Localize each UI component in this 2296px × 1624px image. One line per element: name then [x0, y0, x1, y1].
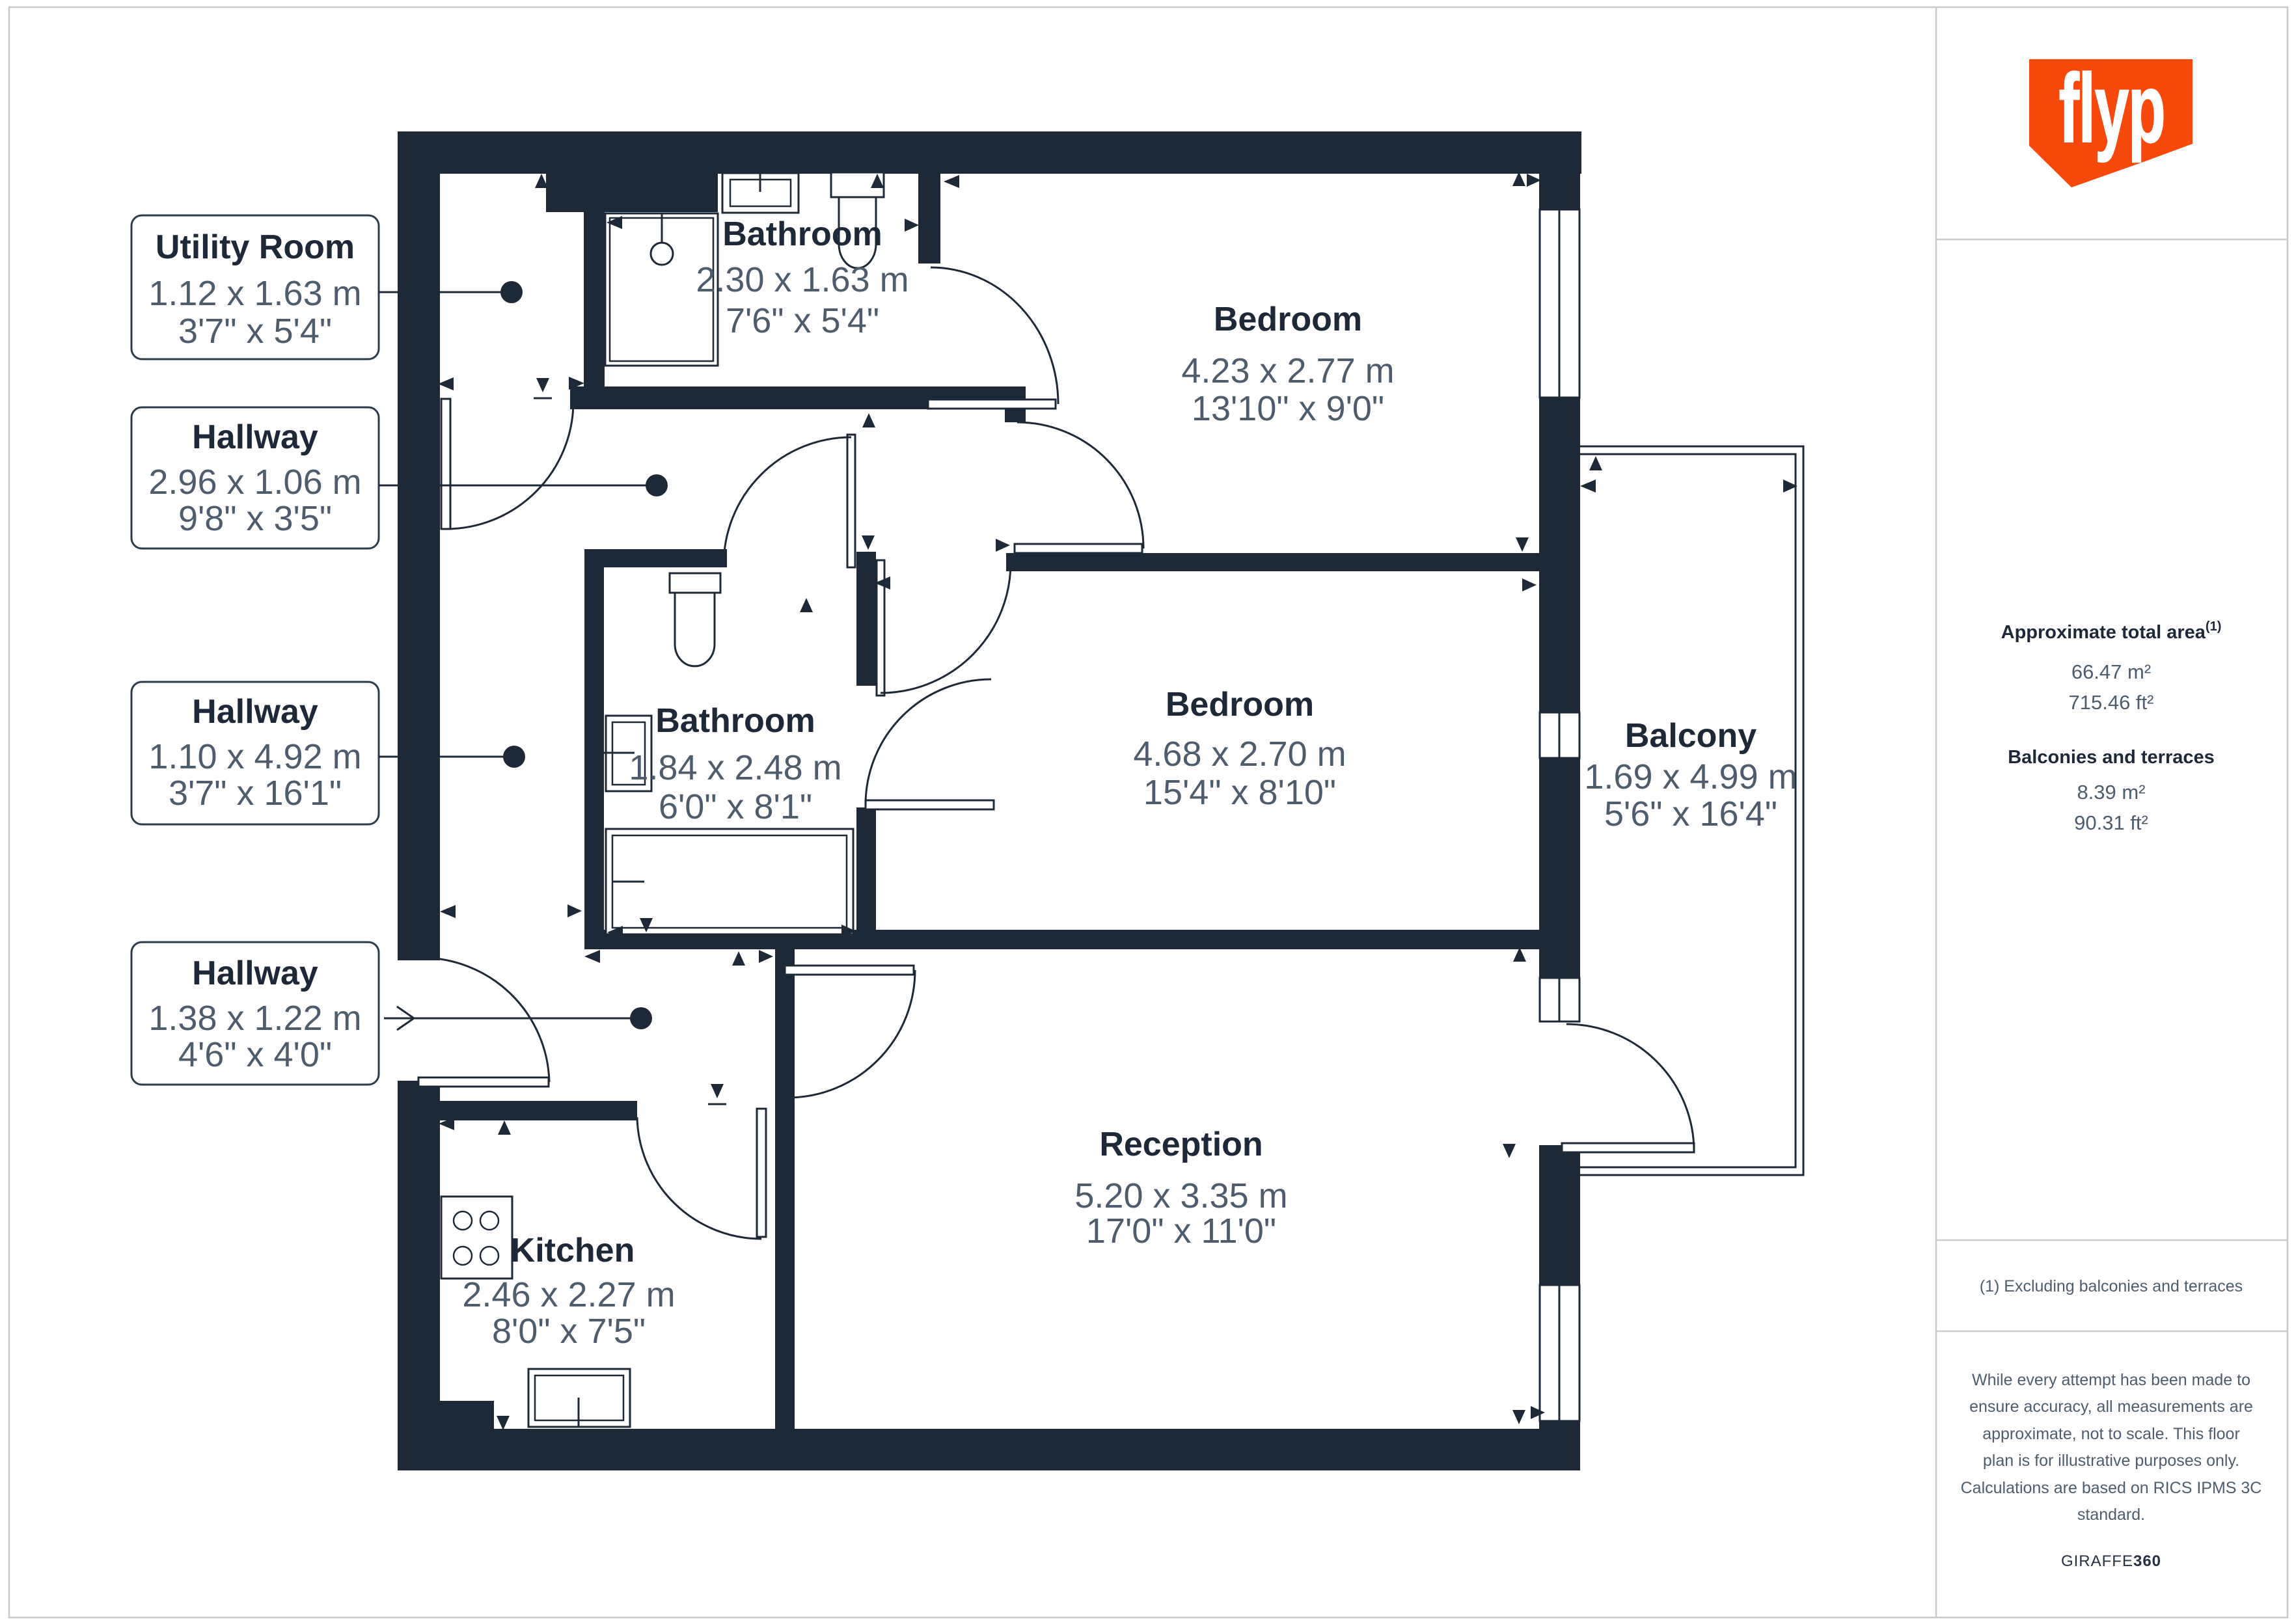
- svg-text:Kitchen: Kitchen: [511, 1232, 635, 1269]
- svg-text:4.68 x 2.70 m: 4.68 x 2.70 m: [1133, 735, 1346, 774]
- svg-text:1.69 x 4.99 m: 1.69 x 4.99 m: [1584, 757, 1797, 796]
- svg-text:2.46 x 2.27 m: 2.46 x 2.27 m: [462, 1275, 675, 1314]
- svg-text:Balcony: Balcony: [1625, 717, 1756, 755]
- svg-text:4.23 x 2.77 m: 4.23 x 2.77 m: [1181, 351, 1394, 390]
- svg-text:715.46 ft²: 715.46 ft²: [2069, 691, 2154, 714]
- svg-text:17'0" x 11'0": 17'0" x 11'0": [1086, 1211, 1276, 1251]
- svg-text:While every attempt has been m: While every attempt has been made to: [1972, 1371, 2250, 1389]
- svg-text:1.84 x 2.48 m: 1.84 x 2.48 m: [629, 748, 841, 787]
- svg-text:6'0" x 8'1": 6'0" x 8'1": [659, 787, 812, 826]
- svg-text:Hallway: Hallway: [192, 418, 318, 456]
- svg-text:3'7" x 5'4": 3'7" x 5'4": [178, 312, 332, 351]
- svg-text:8.39 m²: 8.39 m²: [2077, 781, 2145, 804]
- svg-text:flyp: flyp: [2059, 54, 2165, 163]
- svg-text:approximate, not to scale. Thi: approximate, not to scale. This floor: [1982, 1425, 2240, 1443]
- svg-text:Hallway: Hallway: [192, 693, 318, 731]
- svg-text:Approximate total area(1): Approximate total area(1): [2001, 619, 2222, 643]
- svg-text:4'6" x 4'0": 4'6" x 4'0": [178, 1035, 332, 1074]
- svg-text:15'4" x 8'10": 15'4" x 8'10": [1143, 773, 1336, 812]
- svg-text:Balconies and terraces: Balconies and terraces: [2008, 747, 2215, 768]
- svg-text:13'10" x 9'0": 13'10" x 9'0": [1192, 389, 1384, 428]
- svg-text:66.47 m²: 66.47 m²: [2071, 660, 2151, 683]
- svg-text:(1) Excluding balconies and te: (1) Excluding balconies and terraces: [1980, 1277, 2243, 1295]
- svg-text:Bedroom: Bedroom: [1214, 301, 1362, 338]
- svg-text:1.38 x 1.22 m: 1.38 x 1.22 m: [148, 999, 361, 1038]
- svg-text:standard.: standard.: [2077, 1506, 2145, 1524]
- svg-text:Utility Room: Utility Room: [156, 228, 355, 266]
- svg-text:8'0" x 7'5": 8'0" x 7'5": [492, 1312, 646, 1351]
- svg-text:2.30 x 1.63 m: 2.30 x 1.63 m: [696, 260, 909, 299]
- svg-text:plan is for illustrative purpo: plan is for illustrative purposes only.: [1983, 1452, 2239, 1470]
- svg-text:3'7" x 16'1": 3'7" x 16'1": [169, 774, 342, 813]
- svg-text:Reception: Reception: [1099, 1126, 1263, 1163]
- svg-text:1.12 x 1.63 m: 1.12 x 1.63 m: [148, 274, 361, 313]
- svg-text:5.20 x 3.35 m: 5.20 x 3.35 m: [1074, 1176, 1287, 1215]
- svg-text:Calculations are based on RICS: Calculations are based on RICS IPMS 3C: [1961, 1479, 2262, 1497]
- svg-text:2.96 x 1.06 m: 2.96 x 1.06 m: [148, 463, 361, 502]
- svg-text:9'8" x 3'5": 9'8" x 3'5": [178, 499, 332, 538]
- svg-text:Hallway: Hallway: [192, 954, 318, 992]
- svg-text:Bathroom: Bathroom: [655, 702, 815, 740]
- svg-text:GIRAFFE360: GIRAFFE360: [2061, 1552, 2161, 1570]
- svg-text:ensure accuracy, all measureme: ensure accuracy, all measurements are: [1969, 1398, 2253, 1416]
- svg-text:90.31 ft²: 90.31 ft²: [2074, 811, 2148, 834]
- svg-text:1.10 x 4.92 m: 1.10 x 4.92 m: [148, 737, 361, 776]
- svg-text:Bathroom: Bathroom: [722, 215, 882, 253]
- svg-text:5'6" x 16'4": 5'6" x 16'4": [1604, 794, 1777, 833]
- svg-text:Bedroom: Bedroom: [1166, 686, 1314, 724]
- svg-text:7'6" x 5'4": 7'6" x 5'4": [726, 301, 879, 340]
